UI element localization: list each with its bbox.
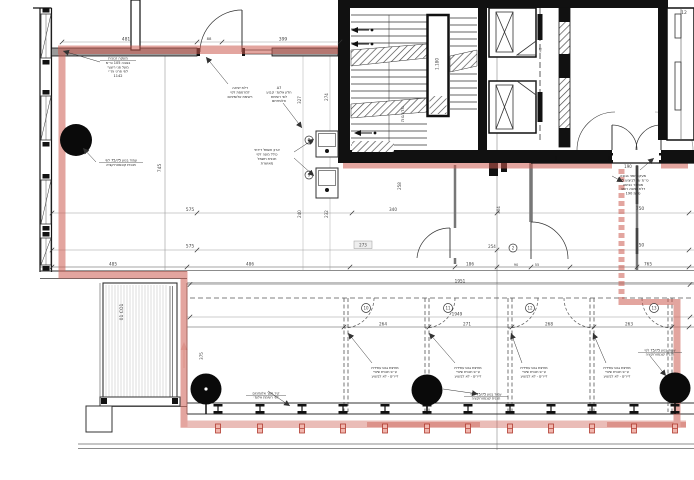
mullion-post	[464, 404, 473, 407]
mullion-post	[381, 404, 390, 407]
wall-anchor	[43, 142, 50, 147]
dim-label: 271	[463, 321, 471, 326]
bubble-number: 13	[651, 306, 657, 311]
mullion-post	[552, 153, 560, 156]
dim-label: 750	[636, 243, 645, 249]
dim-label: 274	[324, 93, 329, 101]
dim-label: 268	[545, 321, 553, 326]
note-line: A7	[277, 86, 282, 90]
note-line: 1142	[114, 74, 123, 78]
mullion-post	[506, 411, 515, 414]
deck-step	[100, 397, 180, 406]
note-line: לפי רשימת	[271, 95, 287, 99]
plan-svg: 4818839974532727424023225830437557534075…	[0, 0, 694, 480]
mullion-post	[588, 404, 597, 407]
note-line: מעקה זמני בגובה	[620, 174, 647, 178]
wall-anchor	[43, 232, 50, 237]
planter	[86, 406, 112, 432]
party-wall-stub	[131, 0, 140, 50]
dim-label: 12	[681, 10, 687, 16]
bubble-number: 8	[308, 138, 311, 143]
dim-label: מדרגות	[400, 106, 406, 122]
dim-label: 01 CO1	[119, 304, 125, 321]
note-line: דיירים - לא לביצוע	[604, 374, 631, 378]
dim-label: 90	[514, 263, 519, 267]
dim-label: 240	[297, 210, 302, 218]
bubble-number: 9	[308, 173, 311, 178]
wall-anchor	[43, 226, 50, 231]
dim-label: 273	[359, 242, 367, 247]
dim-label: 745	[157, 164, 163, 173]
arrow-dot	[371, 43, 374, 46]
mullion-post	[552, 160, 560, 163]
mullion-post	[588, 411, 597, 414]
dim-label: 1951	[455, 279, 466, 284]
bubble-number: 10	[363, 306, 369, 311]
wall-anchor	[43, 174, 50, 179]
dim-label: 486	[246, 262, 254, 267]
dim-label: 399	[279, 37, 288, 43]
dim-label: 375	[199, 352, 204, 360]
mullion-post	[339, 411, 348, 414]
dim-label: 186	[466, 262, 474, 267]
dim-label: 55	[535, 263, 540, 267]
dim-label: 575	[186, 244, 195, 250]
elevator-shaft	[667, 8, 694, 140]
note-line: מסתור כביסה	[623, 183, 644, 187]
note-line: אלומיניום	[272, 99, 287, 103]
dim-label: H2	[539, 48, 543, 53]
bubble-number: 2	[512, 246, 515, 251]
note-line: לפי רשימת אלומ׳	[253, 396, 278, 400]
note-line: חלון אלומ׳ קבוע	[266, 90, 291, 94]
note-line: לפי פרט ות״י	[108, 70, 128, 74]
note-line: 190 ס״מ	[626, 192, 641, 196]
mullion-post	[339, 404, 348, 407]
note-line: ארון חשמל דירתי	[254, 148, 280, 152]
mullion-post	[381, 411, 390, 414]
mullion-post	[214, 411, 223, 414]
mullion-post	[256, 411, 265, 414]
panel-box	[316, 168, 338, 198]
dim-label: 263	[625, 321, 633, 326]
bubble-number: 11	[445, 306, 451, 311]
dim-label: 254	[488, 244, 496, 249]
dim-label: 575	[186, 207, 195, 213]
dim-label: 264	[379, 321, 387, 326]
mullion-post	[659, 160, 667, 163]
mullion-post	[464, 411, 473, 414]
panel-box	[316, 131, 338, 157]
dim-label: 304	[496, 206, 501, 214]
note-line: בגובה 105 ס״מ	[106, 61, 131, 65]
bubble-number: 12	[527, 306, 533, 311]
column	[660, 373, 691, 404]
mullion-post	[547, 404, 556, 407]
dim-label: 481	[122, 37, 131, 43]
wall-anchor	[43, 266, 50, 271]
dim-label: 1949	[452, 312, 463, 317]
note-line: למרפסת לפי	[230, 90, 249, 94]
mullion-post	[214, 404, 223, 407]
note-line: דיירים - לא לביצוע	[455, 374, 482, 378]
mullion-post	[630, 404, 639, 407]
note-line: דיירים - לא לביצוע	[372, 374, 399, 378]
dim-label: 485	[109, 262, 117, 267]
note-line: דלת יציאה	[232, 86, 248, 90]
column	[412, 375, 443, 406]
mullion-post	[630, 411, 639, 414]
note-line: מעל פני ריצוף	[107, 65, 129, 69]
mullion-post	[605, 160, 613, 163]
dim-label: 340	[389, 207, 397, 212]
mullion-post	[547, 411, 556, 414]
wall-anchor	[43, 60, 50, 65]
floor-plan: 4818839974532727424023225830437557534075…	[0, 0, 694, 480]
note-line: רשימת אלומיניום	[228, 95, 253, 99]
mullion-post	[506, 404, 515, 407]
note-line: דיירים - לא לביצוע	[521, 374, 548, 378]
note-line: מעקה זכוכית	[108, 57, 128, 61]
note-line: כולל מונה לפי	[257, 153, 278, 157]
wall-anchor	[43, 90, 50, 95]
mullion-post	[256, 404, 265, 407]
mullion-post	[298, 411, 307, 414]
wall-anchor	[43, 8, 50, 13]
dim-label: 88	[207, 36, 212, 41]
mullion-post	[659, 153, 667, 156]
note-line: תכנית קונסטרוקציה	[106, 163, 136, 167]
arrow-dot	[371, 29, 374, 32]
dim-label: 765	[644, 262, 652, 267]
dim-label: 1.180	[435, 58, 440, 70]
column	[60, 124, 92, 156]
dim-label: 327	[297, 96, 302, 104]
note-line: תכנית קונסטרוקציה	[472, 397, 501, 401]
note-line: דלת כניסה רוחב	[621, 187, 645, 191]
mullion-post	[605, 153, 613, 156]
dim-label: 232	[324, 210, 329, 218]
note-line: מאושרת	[261, 162, 274, 166]
dim-label: 190	[624, 164, 632, 169]
mullion-post	[298, 404, 307, 407]
note-line: עמוד בטון 75/75 לפי	[105, 159, 137, 163]
dim-label: 750	[636, 206, 645, 212]
note-line: תכנית חשמל	[258, 157, 277, 161]
dim-label: 258	[397, 182, 402, 190]
arrow-dot	[374, 132, 377, 135]
